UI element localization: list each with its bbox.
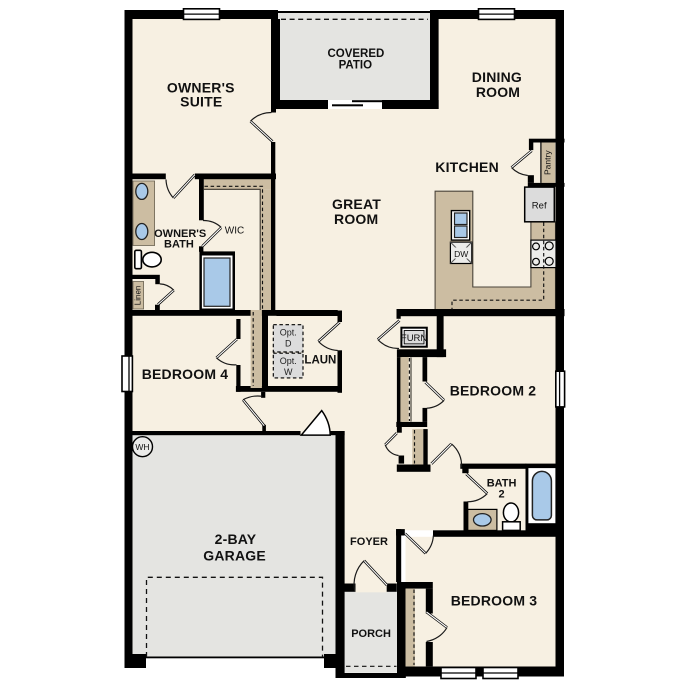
- svg-text:DW: DW: [454, 249, 468, 259]
- svg-text:2-BAY: 2-BAY: [215, 531, 257, 547]
- svg-text:BATH: BATH: [164, 239, 194, 251]
- svg-text:Opt.: Opt.: [280, 327, 297, 337]
- svg-text:ROOM: ROOM: [476, 84, 520, 100]
- svg-text:GREAT: GREAT: [332, 196, 381, 212]
- svg-text:BEDROOM 4: BEDROOM 4: [142, 366, 229, 382]
- svg-text:W: W: [284, 367, 293, 377]
- svg-text:GARAGE: GARAGE: [203, 547, 266, 563]
- svg-text:Ref: Ref: [532, 200, 547, 211]
- svg-text:BEDROOM 2: BEDROOM 2: [450, 382, 537, 398]
- svg-text:FURN: FURN: [401, 333, 428, 344]
- svg-text:LAUN: LAUN: [304, 354, 336, 366]
- svg-text:PATIO: PATIO: [339, 60, 372, 72]
- svg-text:Pantry: Pantry: [542, 150, 552, 175]
- svg-text:KITCHEN: KITCHEN: [435, 159, 499, 175]
- svg-text:Opt.: Opt.: [280, 356, 297, 366]
- svg-text:BEDROOM 3: BEDROOM 3: [451, 592, 538, 608]
- svg-text:Linen: Linen: [133, 286, 142, 306]
- svg-text:SUITE: SUITE: [180, 93, 222, 109]
- svg-text:D: D: [285, 338, 292, 348]
- svg-text:PORCH: PORCH: [351, 628, 391, 640]
- svg-text:WH: WH: [135, 442, 149, 452]
- svg-text:FOYER: FOYER: [350, 536, 388, 548]
- svg-text:2: 2: [499, 489, 505, 501]
- svg-text:ROOM: ROOM: [334, 211, 378, 227]
- svg-text:COVERED: COVERED: [327, 48, 384, 60]
- svg-text:WIC: WIC: [225, 225, 244, 236]
- svg-text:DINING: DINING: [472, 69, 522, 85]
